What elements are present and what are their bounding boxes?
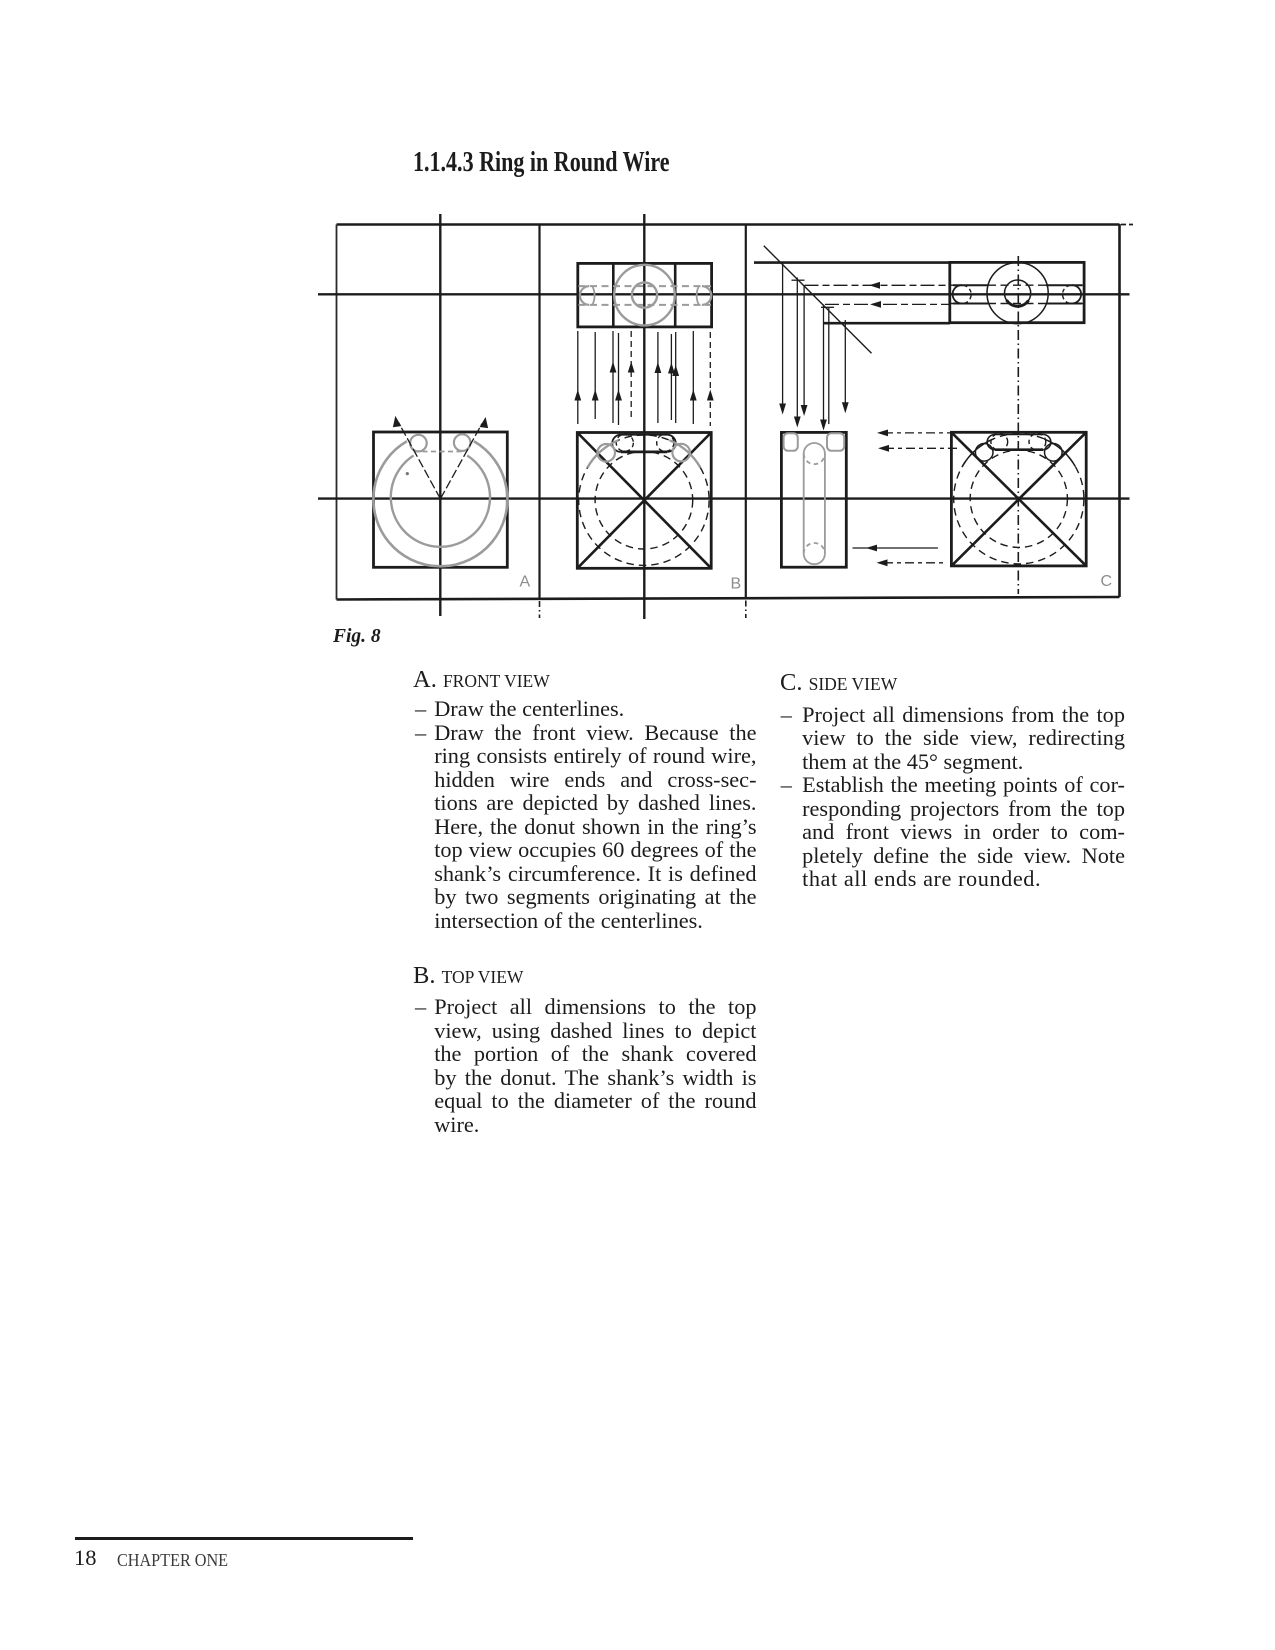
svg-text:A: A [520,574,531,591]
svg-text:B: B [731,576,742,593]
svg-text:C: C [1101,573,1113,590]
